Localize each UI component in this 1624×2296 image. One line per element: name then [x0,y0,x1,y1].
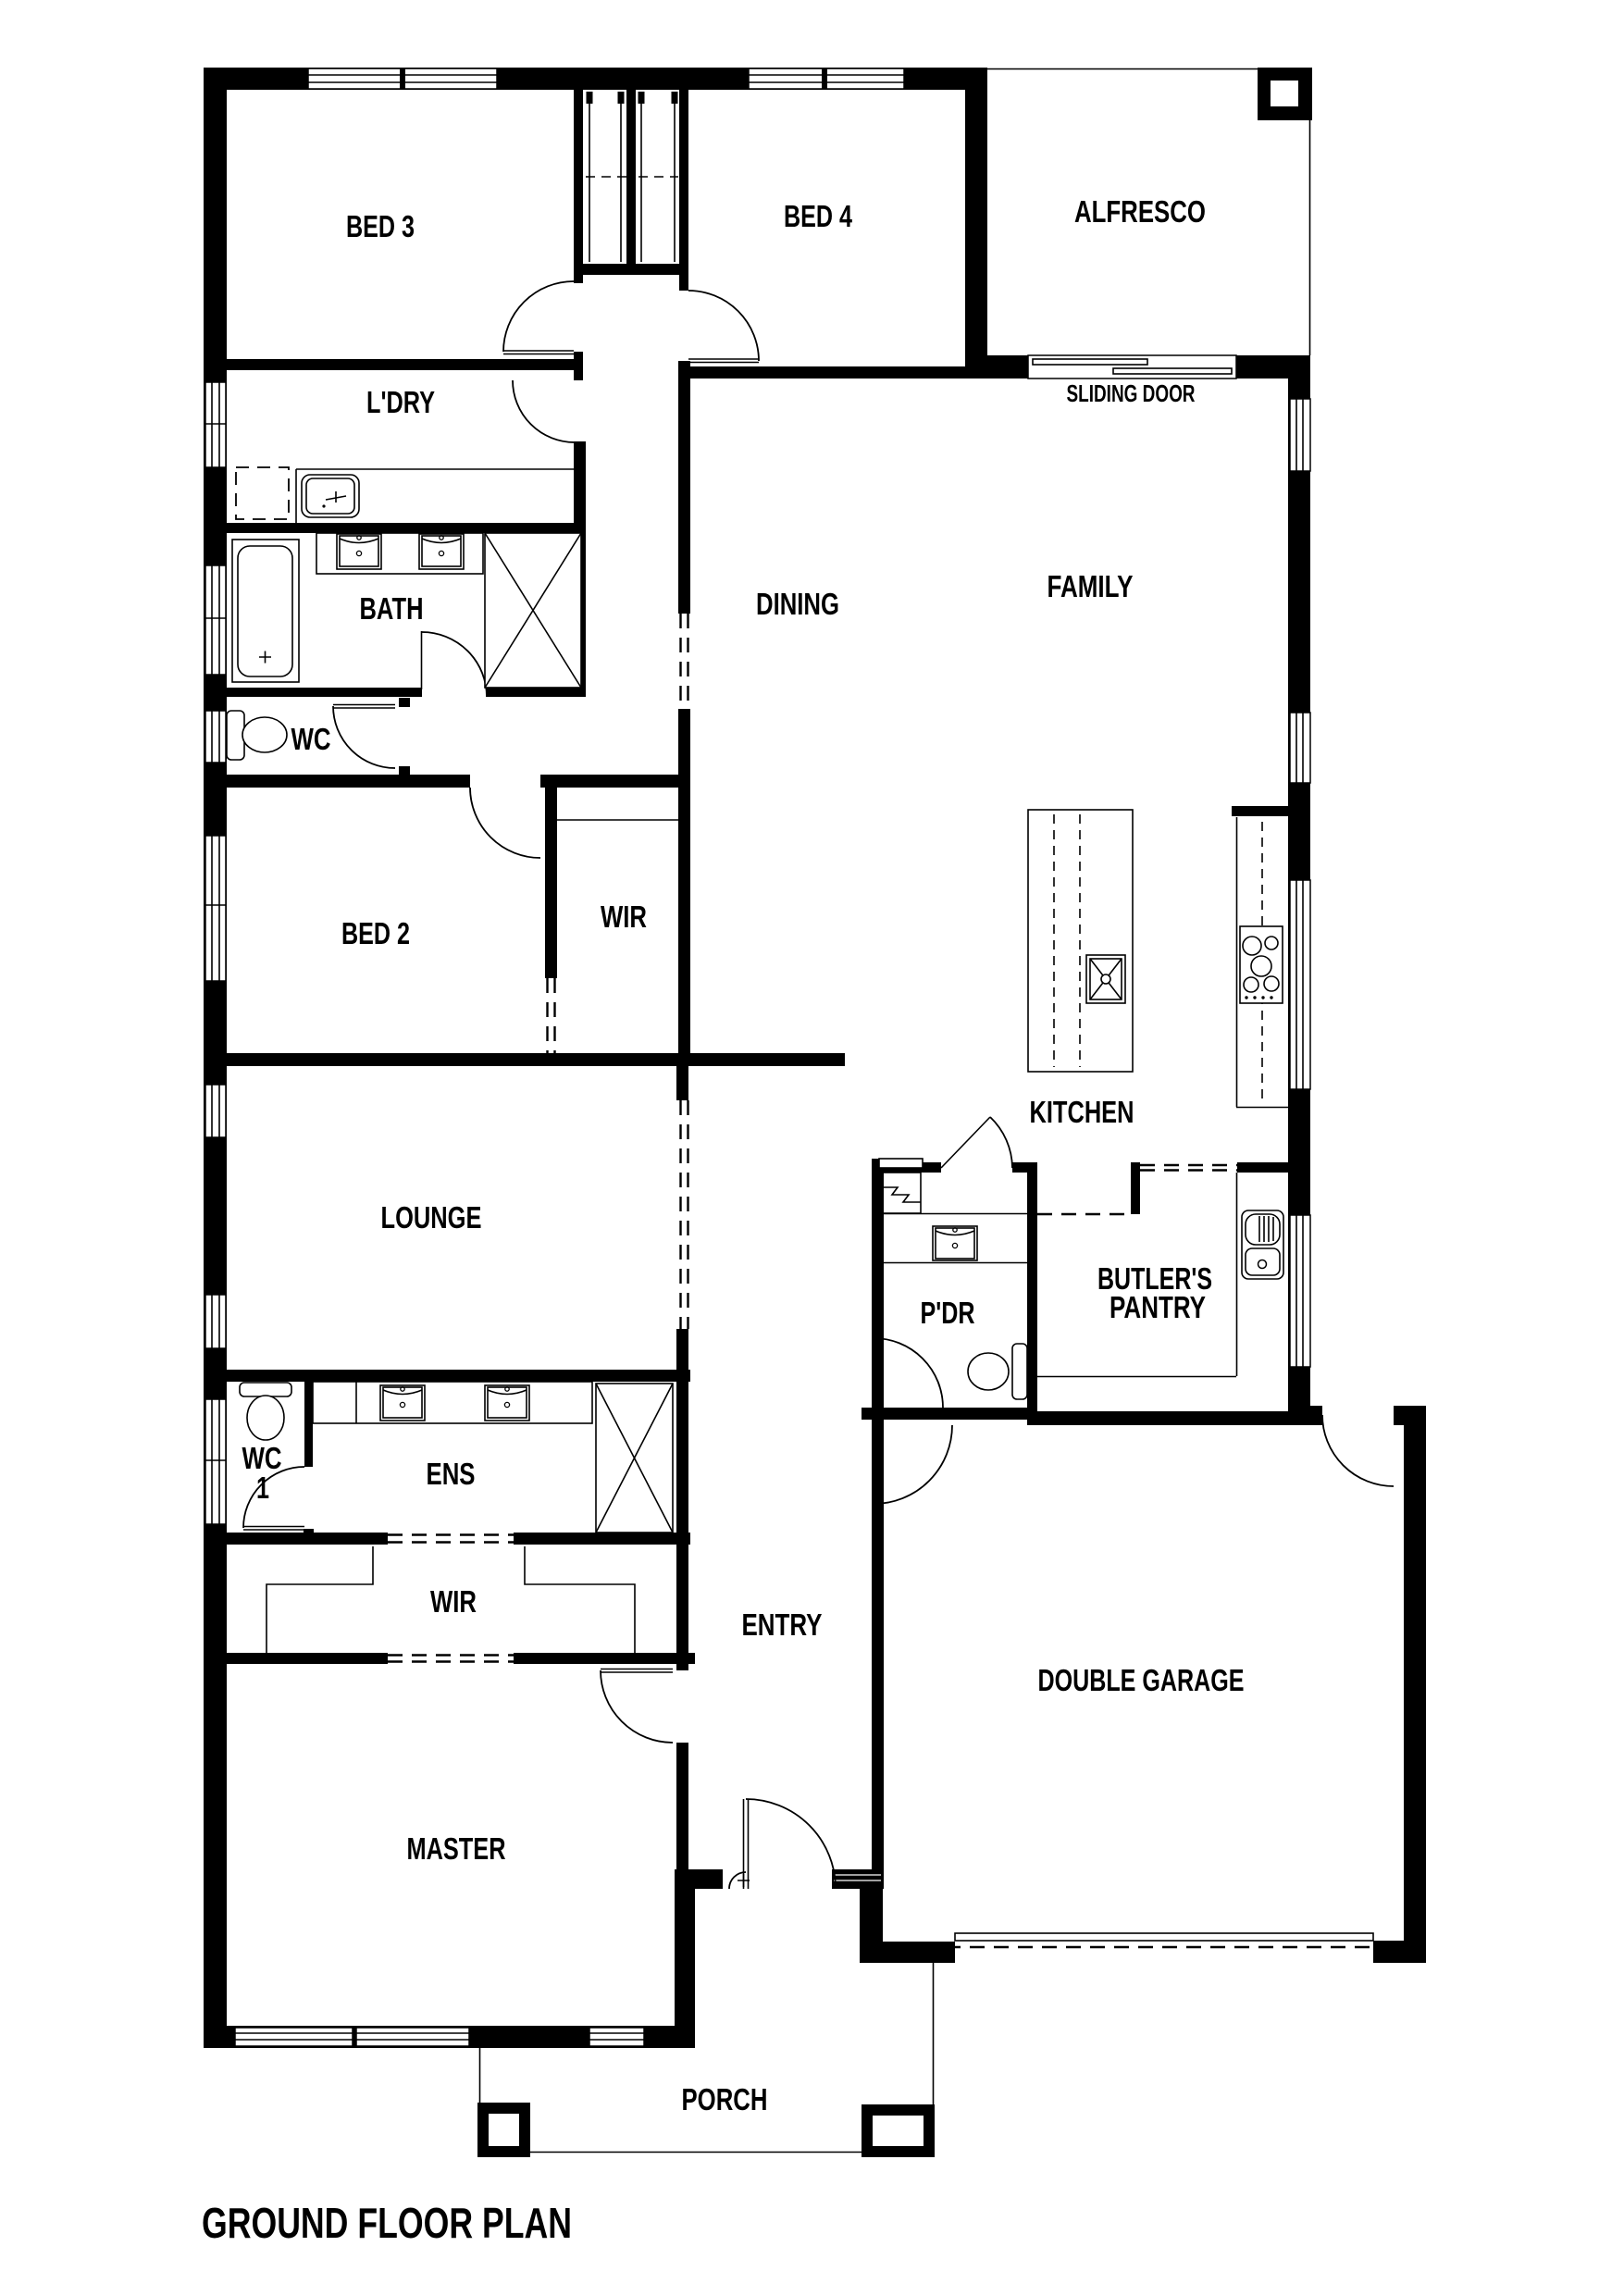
svg-text:WIR: WIR [601,900,647,934]
svg-text:BED 4: BED 4 [784,199,852,233]
svg-text:ENTRY: ENTRY [742,1607,823,1642]
svg-text:L'DRY: L'DRY [366,385,435,419]
svg-text:GROUND FLOOR PLAN: GROUND FLOOR PLAN [202,2199,572,2247]
svg-text:ALFRESCO: ALFRESCO [1074,194,1206,229]
svg-text:1: 1 [256,1471,269,1505]
svg-text:DOUBLE GARAGE: DOUBLE GARAGE [1038,1663,1245,1697]
svg-text:PORCH: PORCH [682,2082,768,2116]
svg-text:PANTRY: PANTRY [1110,1290,1206,1324]
svg-text:P'DR: P'DR [921,1296,975,1330]
svg-text:ENS: ENS [427,1457,476,1491]
svg-text:SLIDING DOOR: SLIDING DOOR [1067,379,1196,407]
svg-text:DINING: DINING [756,587,839,621]
svg-text:BED 2: BED 2 [341,916,410,950]
svg-text:FAMILY: FAMILY [1048,569,1134,603]
svg-text:KITCHEN: KITCHEN [1030,1095,1134,1129]
svg-text:BED 3: BED 3 [346,209,415,243]
svg-text:WIR: WIR [430,1584,477,1619]
svg-text:WC: WC [291,722,331,756]
svg-text:LOUNGE: LOUNGE [381,1200,482,1235]
svg-text:MASTER: MASTER [407,1831,506,1866]
svg-text:BATH: BATH [360,591,424,626]
